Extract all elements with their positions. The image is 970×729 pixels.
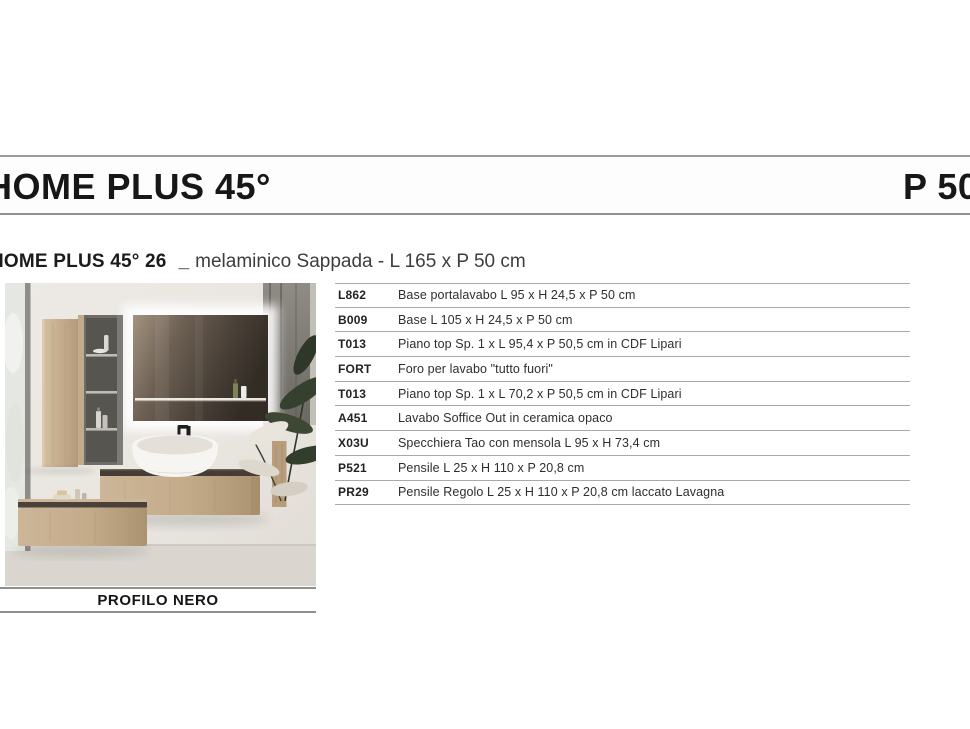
item-description: Piano top Sp. 1 x L 95,4 x P 50,5 cm in … (398, 337, 910, 351)
catalog-page: { "header": { "title": "HOME PLUS 45°", … (0, 0, 970, 729)
item-description: Pensile L 25 x H 110 x P 20,8 cm (398, 461, 910, 475)
photo-caption: PROFILO NERO (0, 587, 316, 613)
item-code: FORT (335, 362, 398, 376)
item-description: Pensile Regolo L 25 x H 110 x P 20,8 cm … (398, 485, 910, 499)
product-subtitle: HOME PLUS 45° 26_melaminico Sappada - L … (0, 250, 526, 274)
item-description: Specchiera Tao con mensola L 95 x H 73,4… (398, 436, 910, 450)
item-description: Base portalavabo L 95 x H 24,5 x P 50 cm (398, 288, 910, 302)
item-code: A451 (335, 411, 398, 425)
table-row: A451 Lavabo Soffice Out in ceramica opac… (335, 406, 910, 431)
table-row: PR29 Pensile Regolo L 25 x H 110 x P 20,… (335, 481, 910, 506)
item-description: Base L 105 x H 24,5 x P 50 cm (398, 313, 910, 327)
shelf-bottle (104, 335, 109, 351)
spec-table: L862 Base portalavabo L 95 x H 24,5 x P … (335, 283, 910, 505)
lower-unit-top (18, 502, 147, 508)
page-title: HOME PLUS 45° (0, 166, 271, 208)
item-description: Piano top Sp. 1 x L 70,2 x P 50,5 cm in … (398, 387, 910, 401)
item-code: X03U (335, 436, 398, 450)
header-band: HOME PLUS 45° P 50 (0, 155, 970, 215)
photo-caption-label: PROFILO NERO (97, 592, 218, 609)
table-row: L862 Base portalavabo L 95 x H 24,5 x P … (335, 283, 910, 308)
header-right-title: P 50 (903, 166, 970, 208)
product-photo (5, 283, 316, 586)
table-row: T013 Piano top Sp. 1 x L 95,4 x P 50,5 c… (335, 332, 910, 357)
table-row: B009 Base L 105 x H 24,5 x P 50 cm (335, 308, 910, 333)
finish-and-size: melaminico Sappada - L 165 x P 50 cm (195, 251, 526, 272)
item-code: T013 (335, 387, 398, 401)
subtitle-separator: _ (179, 251, 190, 272)
item-code: PR29 (335, 485, 398, 499)
table-row: FORT Foro per lavabo "tutto fuori" (335, 357, 910, 382)
open-shelf-unit (78, 315, 123, 465)
model-name: HOME PLUS 45° 26 (0, 251, 167, 272)
table-row: T013 Piano top Sp. 1 x L 70,2 x P 50,5 c… (335, 382, 910, 407)
item-description: Foro per lavabo "tutto fuori" (398, 362, 910, 376)
item-code: B009 (335, 313, 398, 327)
vessel-basin (132, 435, 218, 477)
table-row: P521 Pensile L 25 x H 110 x P 20,8 cm (335, 456, 910, 481)
item-description: Lavabo Soffice Out in ceramica opaco (398, 411, 910, 425)
table-row: X03U Specchiera Tao con mensola L 95 x H… (335, 431, 910, 456)
item-code: L862 (335, 288, 398, 302)
bathroom-composition-illustration (5, 283, 316, 586)
item-code: P521 (335, 461, 398, 475)
item-code: T013 (335, 337, 398, 351)
